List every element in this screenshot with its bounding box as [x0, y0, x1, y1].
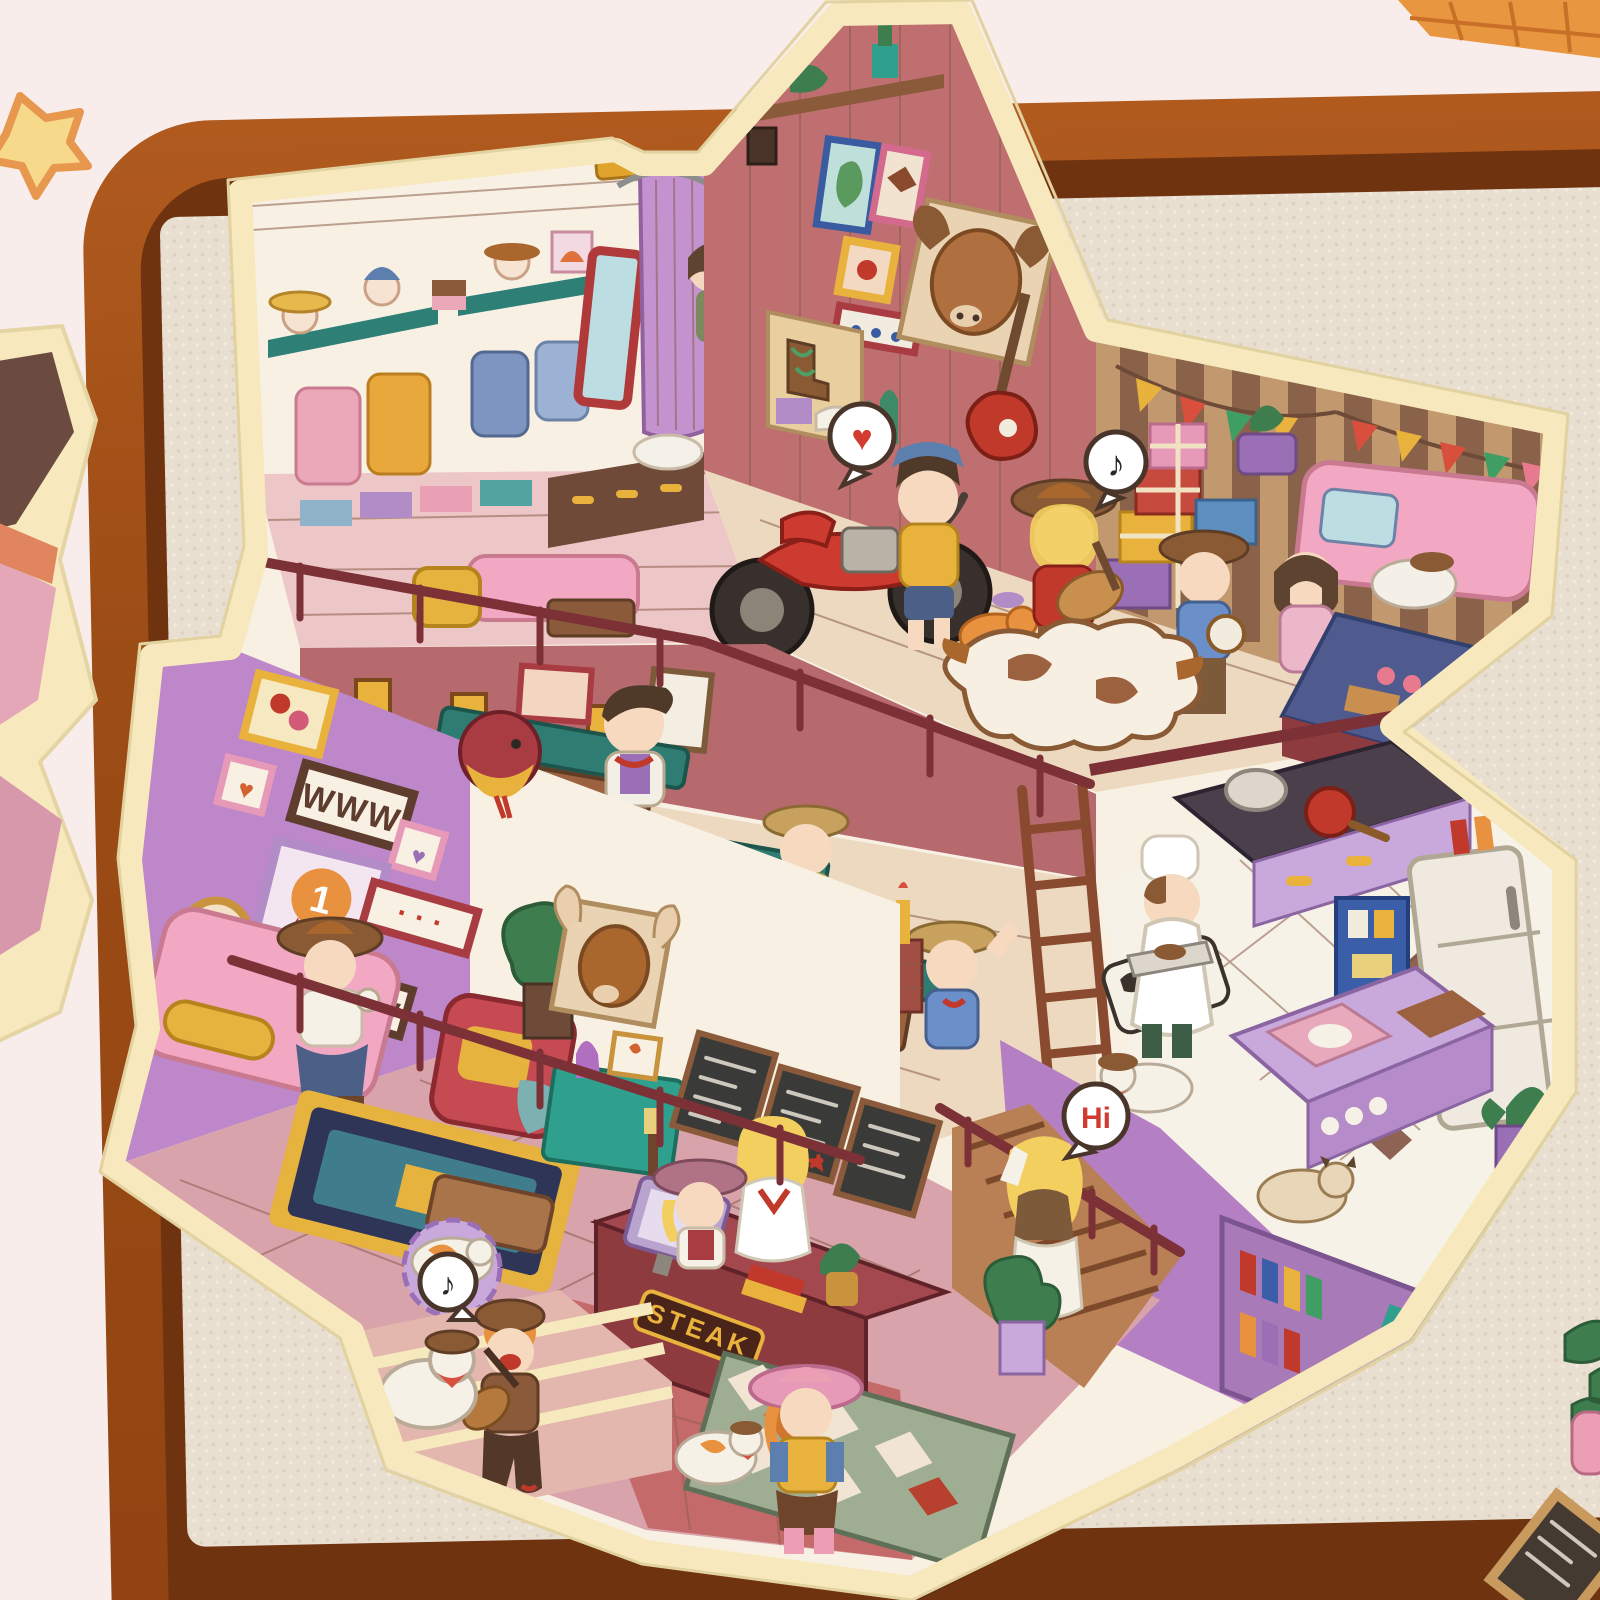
restaurant-frame	[518, 666, 591, 723]
pink-vase	[1572, 1412, 1600, 1474]
photo-canvas: ♥ WWW ♥ 1 · · ·	[0, 0, 1600, 1600]
hi-bubble-text: Hi	[1081, 1102, 1111, 1135]
cowhide-rug	[942, 621, 1203, 749]
heart-bubble-text: ♥	[851, 417, 872, 458]
fitting-mirror	[577, 250, 643, 406]
wall-lantern	[748, 128, 776, 164]
music-note-attic-text: ♪	[1107, 443, 1125, 484]
mounted-bull-head	[899, 200, 1057, 364]
partial-sticker-left	[0, 326, 96, 1044]
music-note-porch-text: ♪	[440, 1266, 456, 1302]
